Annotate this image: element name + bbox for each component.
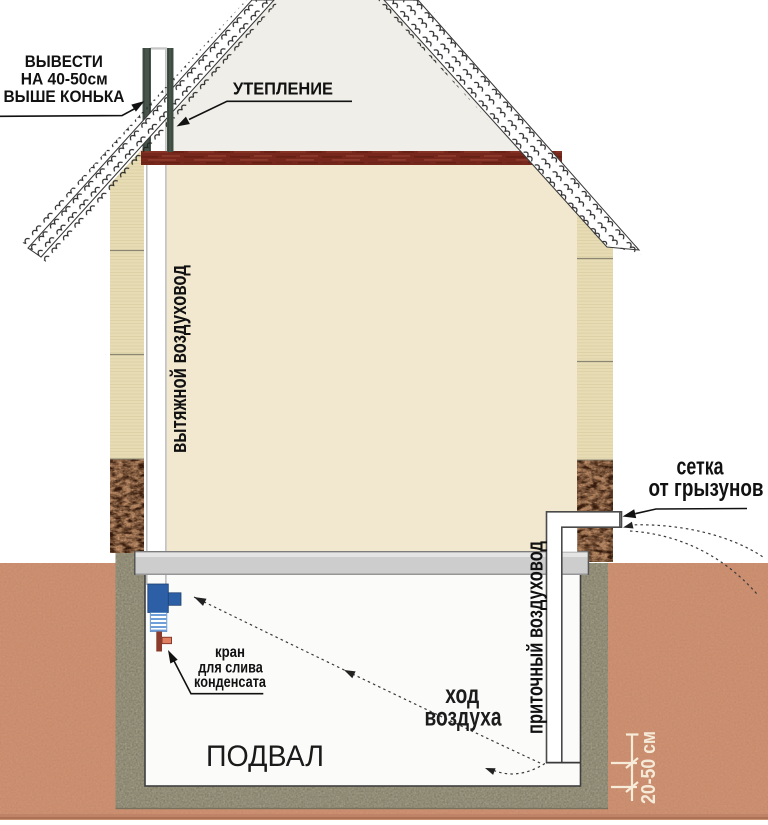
svg-text:приточный воздуховод: приточный воздуховод [523,541,548,734]
svg-text:ВЫВЕСТИ: ВЫВЕСТИ [25,53,103,71]
svg-text:ВЫШЕ КОНЬКА: ВЫШЕ КОНЬКА [4,88,125,106]
svg-text:конденсата: конденсата [194,674,266,691]
svg-text:НА 40-50см: НА 40-50см [21,71,108,89]
svg-text:воздуха: воздуха [425,702,502,732]
svg-text:УТЕПЛЕНИЕ: УТЕПЛЕНИЕ [233,79,333,99]
svg-text:20-50 см: 20-50 см [638,731,660,804]
svg-text:кран: кран [215,644,245,661]
svg-text:ПОДВАЛ: ПОДВАЛ [206,740,324,773]
svg-text:вытяжной воздуховод: вытяжной воздуховод [166,265,191,453]
svg-text:от грызунов: от грызунов [649,475,764,502]
